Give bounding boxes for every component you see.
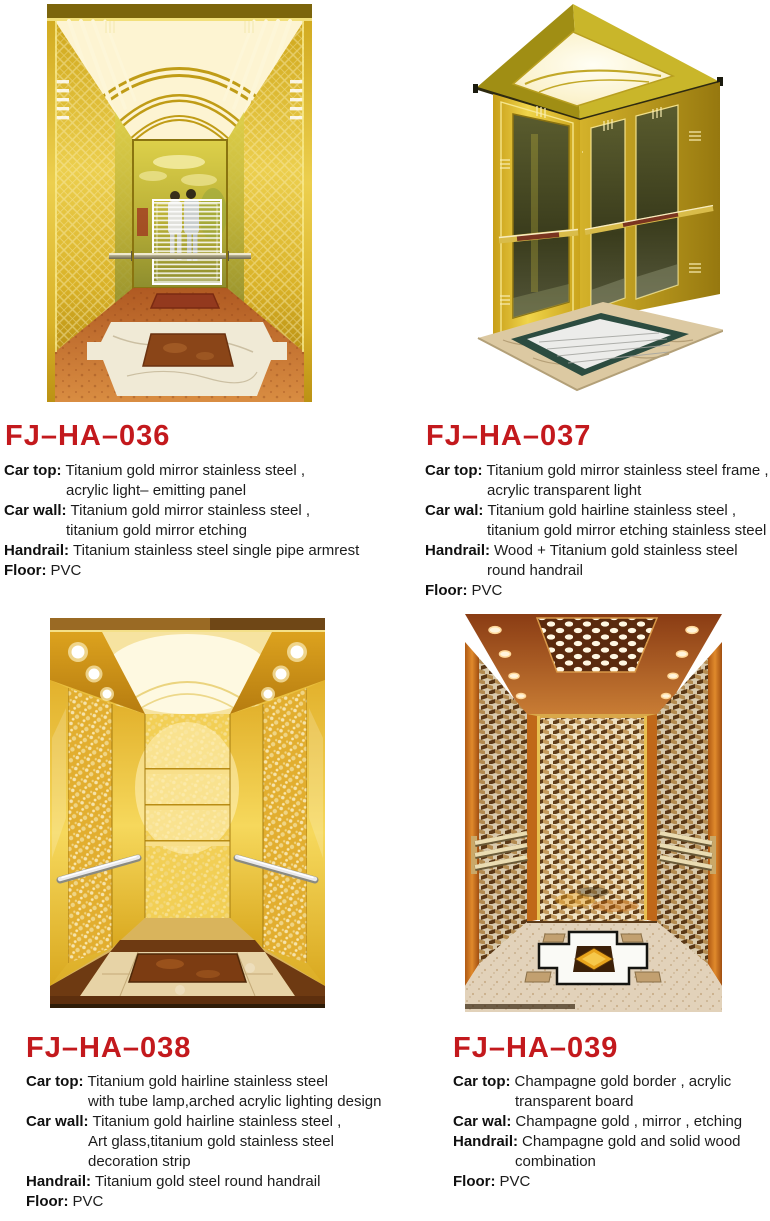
- spec-label: Handrail:: [26, 1173, 91, 1190]
- spec-label: Handrail:: [453, 1133, 518, 1150]
- elevator-interior-illustration-036: [47, 4, 312, 402]
- spec-label: Car top:: [26, 1073, 84, 1090]
- spec-label: Car top:: [425, 462, 483, 479]
- spec-label: Car top:: [4, 462, 62, 479]
- specs-fj-ha-037: Car top:Titanium gold mirror stainless s…: [425, 461, 769, 601]
- spec-continuation: titanium gold mirror etching stainless s…: [425, 521, 769, 541]
- spec-label: Car wal:: [453, 1113, 511, 1130]
- spec-line: Car wal:Titanium gold hairline stainless…: [425, 501, 769, 521]
- spec-line: Car top:Champagne gold border , acrylic: [453, 1072, 742, 1092]
- spec-value: Wood + Titanium gold stainless steel: [494, 542, 738, 559]
- spec-continuation: titanium gold mirror etching: [4, 521, 359, 541]
- spec-label: Car top:: [453, 1073, 511, 1090]
- spec-value: PVC: [472, 582, 503, 599]
- spec-label: Floor:: [4, 562, 47, 579]
- spec-label: Car wal:: [425, 502, 483, 519]
- cabin-037: [473, 4, 723, 390]
- spec-line: Car wal:Champagne gold , mirror , etchin…: [453, 1112, 742, 1132]
- spec-label: Floor:: [453, 1173, 496, 1190]
- spec-continuation: decoration strip: [26, 1152, 382, 1172]
- spec-line: Car top:Titanium gold mirror stainless s…: [4, 461, 359, 481]
- spec-value: Champagne gold , mirror , etching: [515, 1113, 742, 1130]
- product-title-fj-ha-038: FJ–HA–038: [26, 1034, 191, 1063]
- cabin-036: [47, 4, 312, 402]
- spec-continuation: with tube lamp,arched acrylic lighting d…: [26, 1092, 382, 1112]
- spec-line: Car wall:Titanium gold hairline stainles…: [26, 1112, 382, 1132]
- cabin-038: [50, 618, 325, 1008]
- spec-value: Titanium gold mirror stainless steel ,: [66, 462, 306, 479]
- cabin-039: [465, 614, 722, 1012]
- spec-value: Titanium gold hairline stainless steel: [88, 1073, 328, 1090]
- spec-value: Champagne gold border , acrylic: [515, 1073, 732, 1090]
- elevator-cabin-illustration-037: [473, 2, 723, 400]
- photo-fj-ha-039: [465, 614, 722, 1014]
- spec-value: Titanium gold mirror stainless steel fra…: [487, 462, 769, 479]
- spec-line: Car top:Titanium gold mirror stainless s…: [425, 461, 769, 481]
- spec-line: Floor:PVC: [4, 561, 359, 581]
- spec-line: Floor:PVC: [425, 581, 769, 601]
- specs-fj-ha-039: Car top:Champagne gold border , acrylic …: [453, 1072, 742, 1192]
- spec-value: PVC: [73, 1193, 104, 1210]
- spec-value: Titanium stainless steel single pipe arm…: [73, 542, 359, 559]
- spec-line: Handrail:Titanium gold steel round handr…: [26, 1172, 382, 1192]
- spec-label: Car wall:: [26, 1113, 89, 1130]
- photo-fj-ha-036: [47, 4, 312, 402]
- spec-continuation: Art glass,titanium gold stainless steel: [26, 1132, 382, 1152]
- product-title-fj-ha-037: FJ–HA–037: [426, 422, 591, 451]
- catalog-page: FJ–HA–036 FJ–HA–037 FJ–HA–038 FJ–HA–039 …: [0, 0, 770, 1221]
- spec-line: Handrail:Wood + Titanium gold stainless …: [425, 541, 769, 561]
- spec-continuation: acrylic transparent light: [425, 481, 769, 501]
- spec-continuation: combination: [453, 1152, 742, 1172]
- spec-label: Handrail:: [4, 542, 69, 559]
- spec-value: Titanium gold steel round handrail: [95, 1173, 320, 1190]
- spec-label: Floor:: [425, 582, 468, 599]
- spec-continuation: round handrail: [425, 561, 769, 581]
- elevator-interior-illustration-038: [50, 618, 325, 1008]
- spec-line: Floor:PVC: [26, 1192, 382, 1212]
- photo-fj-ha-038: [50, 618, 325, 1008]
- spec-value: Titanium gold hairline stainless steel ,: [487, 502, 736, 519]
- spec-label: Car wall:: [4, 502, 67, 519]
- spec-value: Titanium gold hairline stainless steel ,: [93, 1113, 342, 1130]
- spec-value: PVC: [51, 562, 82, 579]
- spec-value: Champagne gold and solid wood: [522, 1133, 741, 1150]
- spec-line: Handrail:Champagne gold and solid wood: [453, 1132, 742, 1152]
- product-title-fj-ha-039: FJ–HA–039: [453, 1034, 618, 1063]
- spec-line: Floor:PVC: [453, 1172, 742, 1192]
- spec-value: PVC: [500, 1173, 531, 1190]
- specs-fj-ha-036: Car top:Titanium gold mirror stainless s…: [4, 461, 359, 581]
- elevator-interior-illustration-039: [465, 614, 722, 1014]
- product-title-fj-ha-036: FJ–HA–036: [5, 422, 170, 451]
- specs-fj-ha-038: Car top:Titanium gold hairline stainless…: [26, 1072, 382, 1212]
- spec-continuation: transparent board: [453, 1092, 742, 1112]
- spec-line: Car top:Titanium gold hairline stainless…: [26, 1072, 382, 1092]
- photo-fj-ha-037: [473, 2, 723, 400]
- spec-value: Titanium gold mirror stainless steel ,: [71, 502, 311, 519]
- spec-line: Car wall:Titanium gold mirror stainless …: [4, 501, 359, 521]
- spec-continuation: acrylic light– emitting panel: [4, 481, 359, 501]
- spec-label: Handrail:: [425, 542, 490, 559]
- spec-line: Handrail:Titanium stainless steel single…: [4, 541, 359, 561]
- spec-label: Floor:: [26, 1193, 69, 1210]
